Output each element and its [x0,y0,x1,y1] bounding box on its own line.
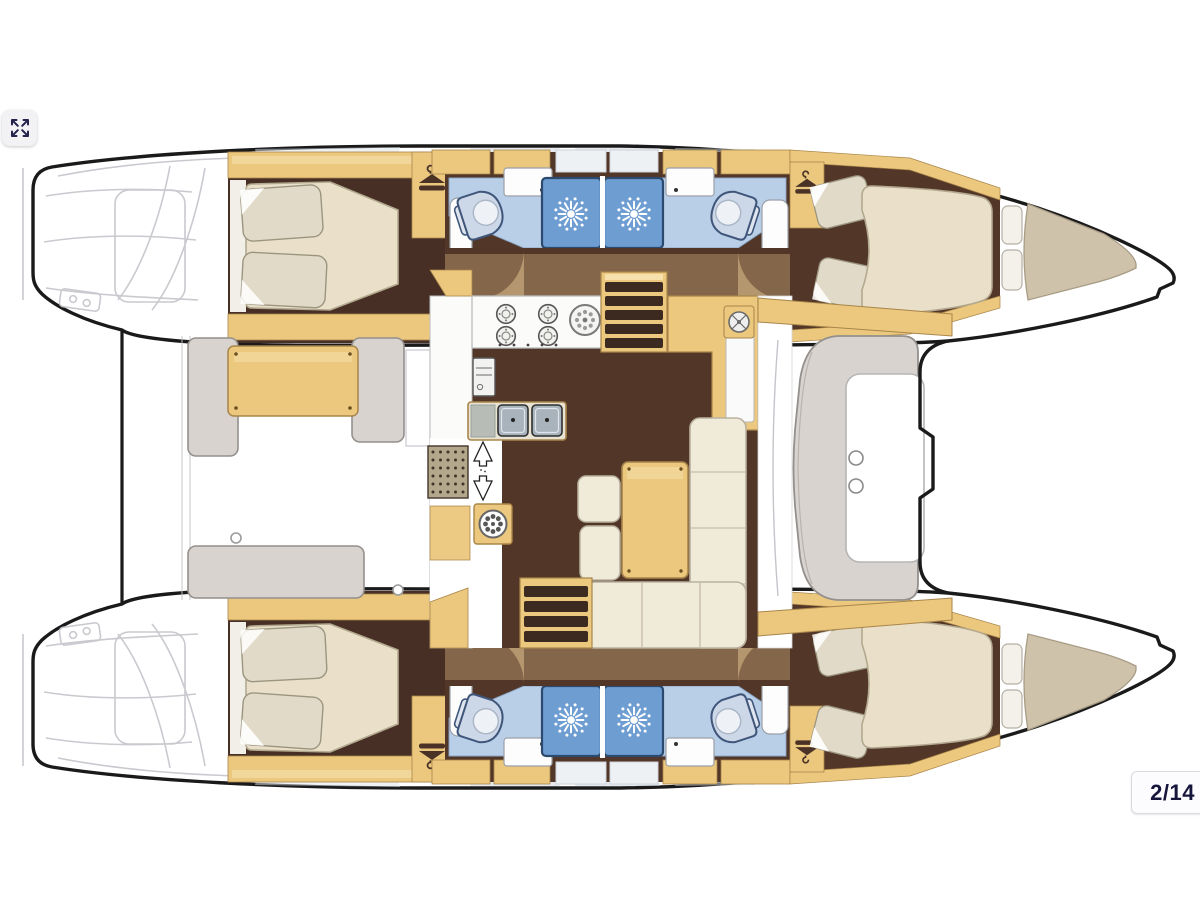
companionway-steps-port [601,272,667,352]
page-indicator-badge: 2/14 [1131,771,1200,814]
cockpit-table [228,346,358,416]
image-viewer: 2/14 [0,0,1200,900]
saloon-table [622,462,688,578]
expand-arrows-icon [9,117,31,139]
galley-vent-grate [428,446,468,498]
forward-table [846,374,924,562]
fullscreen-button[interactable] [2,110,37,146]
cockpit-bench [352,338,404,442]
aft-cockpit [122,331,430,603]
saloon-door [758,296,792,648]
saloon [428,270,792,648]
galley-stove [472,296,612,348]
page-indicator: 2/14 [1150,780,1195,805]
galley-sink [468,402,566,440]
companionway-steps-starboard [520,578,592,648]
galley-fridge [473,358,495,396]
deck-hatch-icon [474,504,512,544]
cockpit-bench [188,546,364,598]
catamaran-floorplan [0,0,1200,900]
